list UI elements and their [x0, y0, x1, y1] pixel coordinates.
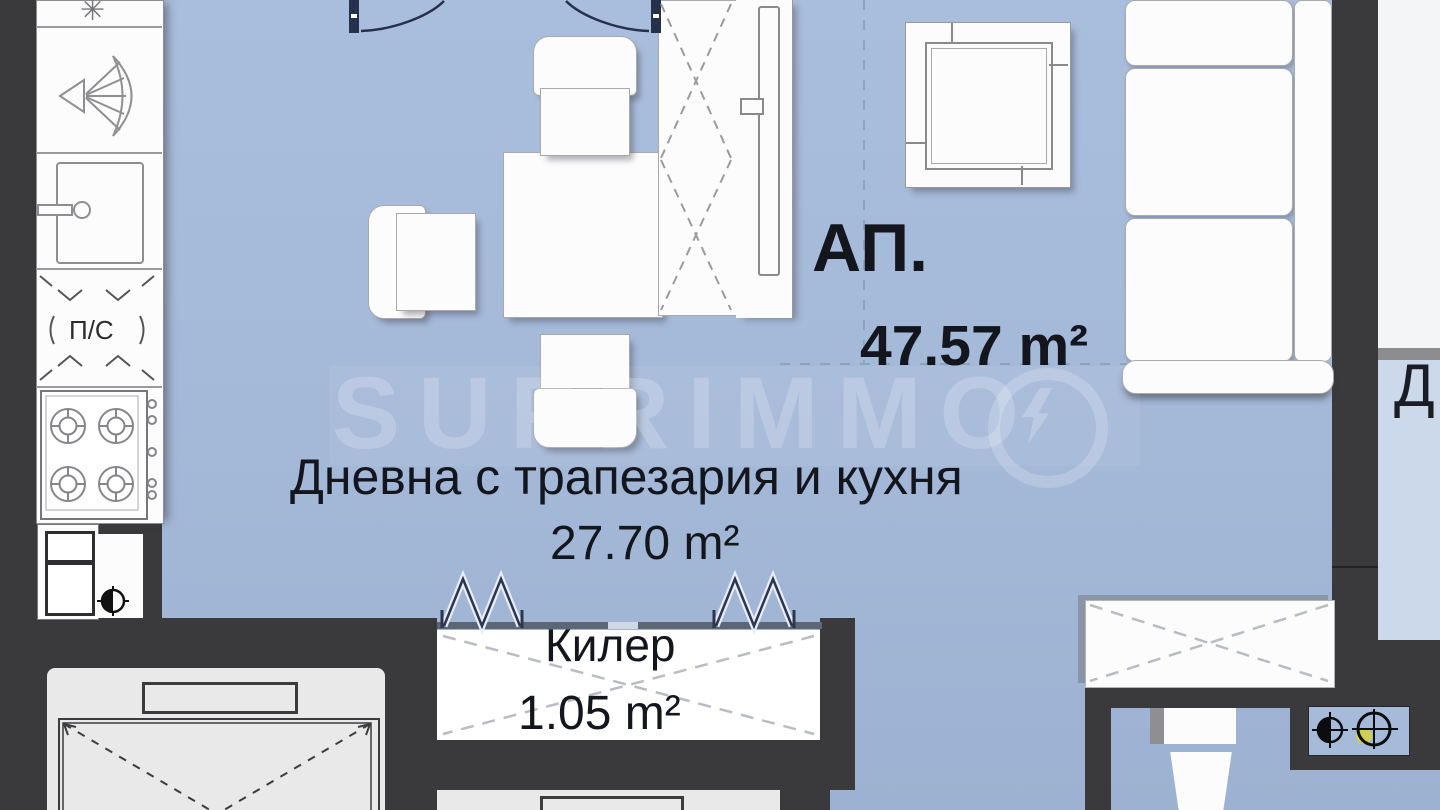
kitchen-door-opening — [97, 534, 143, 618]
ps-unit-label: П/С — [69, 317, 114, 343]
side-table-top — [925, 42, 1053, 170]
chair-seat — [540, 88, 630, 156]
elevator-door-2 — [540, 796, 684, 810]
wall-segment — [1332, 0, 1378, 706]
fridge-compartment — [45, 531, 95, 563]
adjacent-room-label: Д — [1394, 356, 1435, 416]
cooktop-asterisk-icon: ✳ — [80, 0, 105, 26]
living-room-label: Дневна с трапезария и кухня — [290, 452, 963, 502]
sofa-backrest — [1294, 0, 1332, 362]
sofa-cushion — [1125, 0, 1293, 66]
wall-joint-line — [1332, 566, 1378, 568]
wall-segment — [395, 740, 855, 790]
adjacent-room-floor-white — [1378, 0, 1440, 348]
sofa-cushion — [1125, 218, 1293, 362]
stove — [40, 390, 148, 520]
sofa-armrest — [1122, 360, 1334, 394]
hall-door-frame — [1150, 708, 1164, 744]
wall-segment — [1085, 708, 1111, 810]
watermark-logo-circle — [988, 368, 1108, 488]
dining-table — [503, 152, 663, 318]
elevator-cab — [58, 718, 380, 810]
closet-area: 1.05 m² — [518, 690, 681, 738]
hall-cabinet — [1085, 600, 1335, 688]
utility-shaft-panel — [1308, 706, 1410, 756]
counter-divider — [36, 268, 162, 270]
tv-bracket — [740, 98, 764, 115]
hall-door-leaf — [1166, 752, 1236, 810]
fridge-compartment — [45, 562, 95, 616]
chair-back — [533, 36, 637, 96]
double-door-swing-icon — [349, 0, 661, 33]
apartment-label: АП. — [812, 214, 928, 282]
closet-label: Килер — [545, 622, 676, 668]
elevator-door — [142, 682, 298, 714]
living-room-area: 27.70 m² — [550, 520, 739, 568]
apartment-area: 47.57 m² — [860, 318, 1088, 375]
wall-segment — [780, 790, 830, 810]
counter-divider — [36, 386, 162, 388]
hall-door-opening — [1164, 708, 1236, 744]
wall-segment — [140, 522, 162, 618]
kitchen-sink — [56, 162, 144, 264]
wall-segment — [820, 618, 855, 740]
tv-panel — [758, 6, 780, 276]
chair-seat — [396, 213, 476, 311]
wardrobe — [658, 0, 738, 316]
sofa-cushion — [1125, 68, 1293, 216]
floor-plan: ✳ — [0, 0, 1440, 810]
counter-divider — [36, 152, 162, 154]
